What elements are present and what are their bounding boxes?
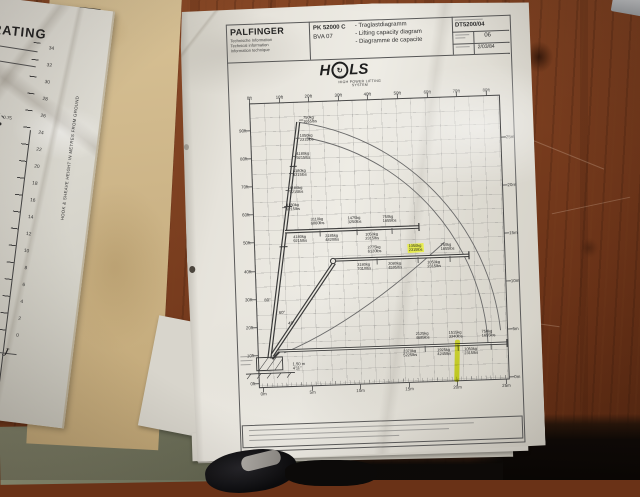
rating-axis-number: 28 bbox=[42, 96, 48, 102]
axis-label-bottom-m: 15m bbox=[405, 386, 414, 391]
rating-point-value: 0.75 bbox=[3, 115, 12, 121]
rating-axis-number: 10 bbox=[24, 248, 30, 254]
axis-label-left-ft: 90ft bbox=[239, 128, 247, 133]
capacity-lbs: 4820lbs bbox=[325, 238, 339, 242]
boom-angle-label: 60° bbox=[279, 311, 285, 315]
capacity-label: 750kg1655lbs bbox=[441, 243, 455, 251]
capacity-lbs: 9215lbs bbox=[286, 207, 300, 211]
footer-text-line bbox=[249, 435, 399, 441]
rating-axis-number: 34 bbox=[48, 45, 54, 51]
rating-title: RATING bbox=[0, 21, 47, 42]
rating-axis-number: 18 bbox=[32, 180, 38, 186]
capacity-label: 4180kg9215lbs bbox=[293, 235, 307, 243]
capacity-lbs: 6120lbs bbox=[368, 249, 382, 253]
axis-label-top-ft: 80ft bbox=[482, 87, 490, 92]
capacity-label: 2775kg6120lbs bbox=[368, 245, 382, 253]
capacity-lbs: 6860lbs bbox=[311, 221, 325, 225]
axis-label-top-ft: 30ft bbox=[335, 93, 343, 98]
capacity-label: 1515kg3340lbs bbox=[449, 331, 463, 339]
capacity-label: 4180kg9215lbs bbox=[296, 152, 310, 160]
rating-vertical-axis-label: HOOK & SHEAVE HEIGHT IN METRES FROM GROU… bbox=[61, 128, 77, 221]
capacity-lbs: 4245lbs bbox=[437, 352, 451, 356]
capacity-label: 1050kg2315lbs bbox=[300, 134, 314, 142]
capacity-lbs: 1655lbs bbox=[303, 119, 317, 123]
capacity-lbs: 2315lbs bbox=[427, 264, 441, 268]
capacity-lbs: 2315lbs bbox=[365, 236, 379, 240]
axis-label-right-m: 15m bbox=[509, 230, 518, 235]
dark-object bbox=[285, 460, 377, 486]
capacity-lbs: 1655lbs bbox=[482, 333, 496, 337]
capacity-lbs: 9215lbs bbox=[296, 156, 310, 160]
axis-label-right-m: 0m bbox=[514, 374, 520, 379]
capacity-lbs: 9215lbs bbox=[293, 239, 307, 243]
capacity-label: 750kg1655lbs bbox=[303, 116, 317, 124]
capacity-lbs: 3250lbs bbox=[348, 220, 362, 224]
rating-axis-number: 12 bbox=[26, 231, 32, 237]
capacity-label: 2080kg4595lbs bbox=[388, 262, 402, 270]
hls-logo-ls: LS bbox=[349, 61, 369, 79]
axis-label-left-ft: 40ft bbox=[244, 269, 252, 274]
brand-logo: PALFINGER bbox=[230, 26, 284, 38]
boom-angle-label: 45° bbox=[288, 321, 294, 325]
rating-axis-ticks bbox=[0, 42, 41, 341]
axis-label-right-m: 25m bbox=[506, 134, 515, 139]
capacity-lbs: 9215lbs bbox=[293, 173, 307, 177]
capacity-lbs: 7010lbs bbox=[357, 267, 371, 271]
rating-axis-number: 32 bbox=[46, 62, 52, 68]
capacity-label: 1475kg3250lbs bbox=[348, 216, 362, 224]
boom-angle-label: 80° bbox=[264, 298, 270, 302]
rating-axis-number: 26 bbox=[40, 113, 46, 119]
capacity-label: 750kg1655lbs bbox=[482, 329, 496, 337]
highlighter-stroke bbox=[454, 340, 460, 382]
punch-hole bbox=[189, 266, 195, 273]
rating-axis-number: 4 bbox=[20, 299, 23, 305]
axis-label-bottom-m: 25m bbox=[502, 383, 511, 388]
axis-label-left-ft: 50ft bbox=[243, 240, 251, 245]
hls-logo-max: MAX bbox=[338, 76, 345, 79]
axis-label-bottom-m: 10m bbox=[356, 388, 365, 393]
capacity-lbs: 1655lbs bbox=[441, 247, 455, 251]
capacity-label: 4180kg9215lbs bbox=[289, 186, 303, 194]
axis-label-top-ft: 0ft bbox=[247, 96, 252, 101]
capacity-label: 1925kg4245lbs bbox=[437, 348, 451, 356]
model-number: PK 52000 C bbox=[313, 24, 346, 31]
axis-label-left-ft: 80ft bbox=[240, 156, 248, 161]
capacity-label: 4180kg9215lbs bbox=[286, 203, 300, 211]
capacity-label: 3110kg6860lbs bbox=[311, 217, 325, 225]
footer-text-line bbox=[249, 422, 474, 431]
capacity-label: 2370kg5225lbs bbox=[403, 349, 417, 357]
axis-label-bottom-m: 0m bbox=[261, 391, 267, 396]
axis-label-top-ft: 50ft bbox=[393, 91, 401, 96]
issue-date: 2/03/84 bbox=[478, 44, 495, 50]
axis-label-left-ft: 70ft bbox=[241, 184, 249, 189]
axis-label-top-ft: 20ft bbox=[305, 94, 313, 99]
rating-axis-number: 22 bbox=[36, 146, 42, 152]
punch-hole bbox=[184, 144, 189, 150]
axis-label-top-ft: 10ft bbox=[276, 95, 284, 100]
rating-axis-number: 24 bbox=[38, 129, 44, 135]
sheet-number: 06 bbox=[484, 32, 491, 38]
rating-axis-number: 16 bbox=[30, 197, 36, 203]
axis-label-left-ft: 20ft bbox=[246, 325, 254, 330]
axis-label-bottom-m: 5m bbox=[309, 390, 315, 395]
rating-axis-number: 8 bbox=[24, 265, 27, 271]
capacity-lbs: 2315lbs bbox=[409, 248, 423, 252]
base-dimension-ft: 4'11" bbox=[293, 366, 306, 370]
axis-label-right-m: 5m bbox=[512, 326, 518, 331]
rating-axis-number: 20 bbox=[34, 163, 40, 169]
capacity-lbs: 4595lbs bbox=[388, 266, 402, 270]
capacity-lbs: 2315lbs bbox=[300, 138, 314, 142]
capacity-chart-grid bbox=[250, 95, 510, 388]
capacity-label: 3180kg7010lbs bbox=[357, 263, 371, 271]
capacity-lbs: 4685lbs bbox=[416, 336, 430, 340]
capacity-label: 2125kg4685lbs bbox=[416, 332, 430, 340]
axis-label-top-ft: 70ft bbox=[452, 89, 460, 94]
capacity-lbs: 2315lbs bbox=[464, 351, 478, 355]
rating-axis-number: 2 bbox=[18, 315, 21, 321]
axis-label-left-ft: 30ft bbox=[245, 297, 253, 302]
capacity-lbs: 5225lbs bbox=[403, 353, 417, 357]
capacity-label: 1050kg2315lbs bbox=[409, 244, 423, 252]
axis-label-right-m: 10m bbox=[511, 278, 520, 283]
axis-label-left-ft: 60ft bbox=[242, 212, 250, 217]
data-point-dot bbox=[0, 122, 2, 125]
hls-logo-h: H bbox=[319, 62, 330, 79]
axis-label-left-ft: 0ft bbox=[250, 381, 255, 386]
capacity-label: 750kg1655lbs bbox=[382, 215, 396, 223]
hls-tagline: HIGH POWER LIFTING SYSTEM bbox=[338, 79, 381, 87]
capacity-label: 1050kg2315lbs bbox=[365, 232, 379, 240]
wood-scratch bbox=[552, 197, 630, 215]
capacity-label: 1050kg2315lbs bbox=[464, 347, 478, 355]
axis-label-top-ft: 60ft bbox=[423, 90, 431, 95]
rating-axis-number: 30 bbox=[44, 79, 50, 85]
capacity-lbs: 3340lbs bbox=[449, 334, 463, 338]
axis-label-bottom-m: 20m bbox=[453, 385, 462, 390]
rating-axis-number: 6 bbox=[22, 282, 25, 288]
axis-label-right-m: 20m bbox=[507, 182, 516, 187]
capacity-label: 2185kg4820lbs bbox=[325, 234, 339, 242]
capacity-lbs: 9215lbs bbox=[290, 190, 304, 194]
capacity-label: 1050kg2315lbs bbox=[427, 260, 441, 268]
capacity-label: 4180kg9215lbs bbox=[293, 169, 307, 177]
axis-label-top-ft: 40ft bbox=[364, 92, 372, 97]
rating-axis-number: 14 bbox=[28, 214, 34, 220]
base-dimension: 1.50 m 4'11" bbox=[293, 362, 306, 371]
wood-knot bbox=[576, 234, 602, 262]
palfinger-datasheet-page: PALFINGER Technische Information Technic… bbox=[178, 0, 546, 462]
doc-number: DT5200/04 bbox=[455, 22, 485, 29]
variant-code: BVA 07 bbox=[313, 34, 333, 41]
capacity-lbs: 1655lbs bbox=[383, 219, 397, 223]
rating-axis-number: 0 bbox=[16, 332, 19, 338]
